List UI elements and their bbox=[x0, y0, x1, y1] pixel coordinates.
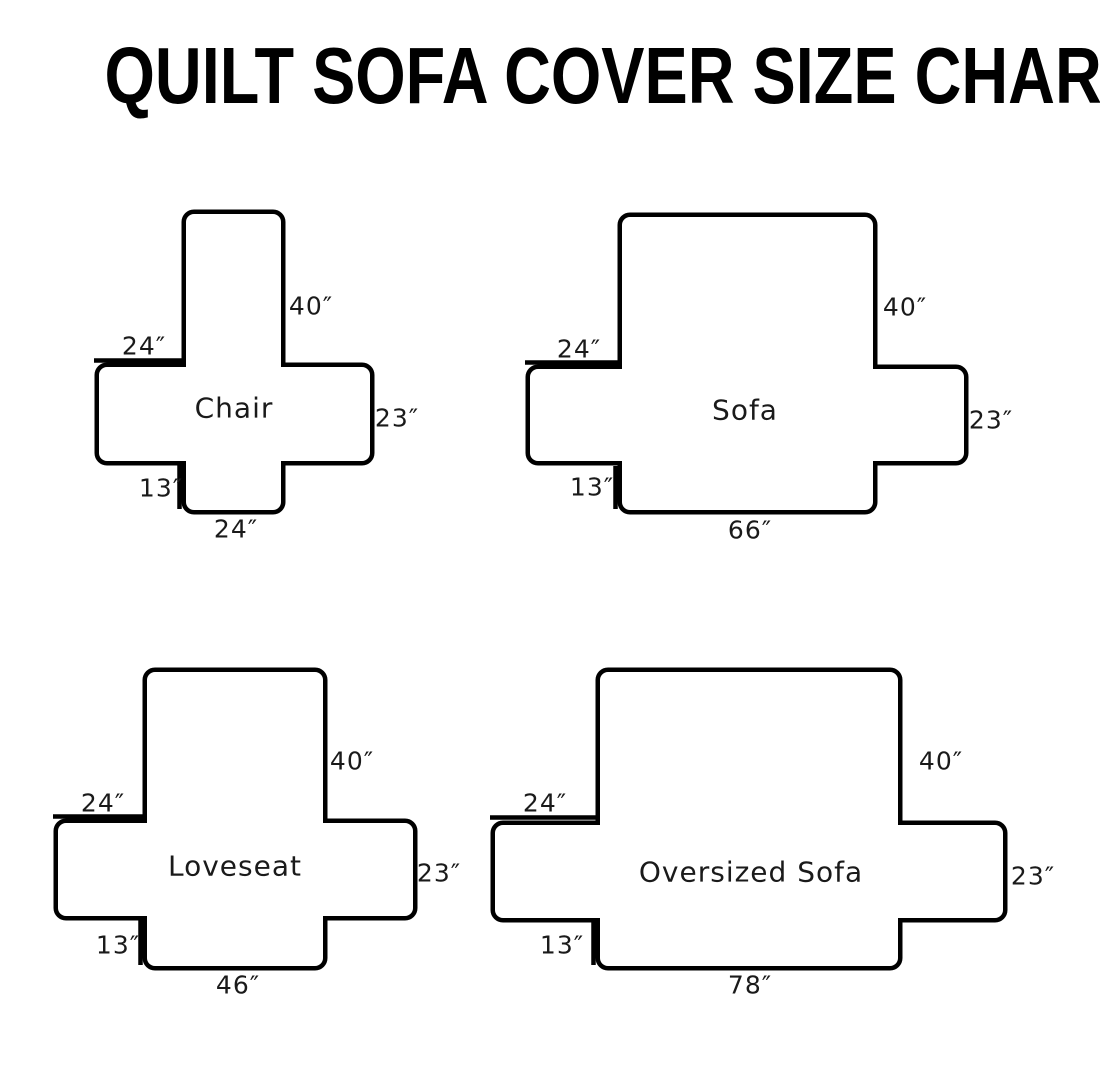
sofa-side-depth-label: 23″ bbox=[969, 406, 1013, 435]
sofa-name-label: Sofa bbox=[712, 394, 778, 427]
oversized-back-height-label: 40″ bbox=[919, 747, 963, 776]
oversized-arm-width-label: 24″ bbox=[523, 789, 567, 818]
oversized-side-depth-label: 23″ bbox=[1011, 862, 1055, 891]
loveseat-side-depth-label: 23″ bbox=[417, 859, 461, 888]
chair-cover-outline bbox=[94, 214, 370, 510]
chair-name-label: Chair bbox=[195, 392, 274, 425]
chair-arm-width-label: 24″ bbox=[122, 332, 166, 361]
oversized-bottom-width-label: 78″ bbox=[728, 971, 772, 1000]
sofa-bottom-width-label: 66″ bbox=[728, 516, 772, 545]
chair-back-skirt-fill bbox=[186, 214, 281, 510]
chair-bottom-width-label: 24″ bbox=[214, 515, 258, 544]
loveseat-bottom-width-label: 46″ bbox=[216, 971, 260, 1000]
chair-front-drop-label: 13″ bbox=[139, 474, 183, 503]
loveseat-back-skirt-fill bbox=[147, 672, 323, 966]
chair-side-depth-label: 23″ bbox=[375, 404, 419, 433]
loveseat-cover-outline bbox=[53, 672, 413, 966]
loveseat-front-drop-label: 13″ bbox=[96, 931, 140, 960]
oversized-front-drop-label: 13″ bbox=[540, 931, 584, 960]
chair-back-height-label: 40″ bbox=[289, 292, 333, 321]
sofa-front-drop-label: 13″ bbox=[570, 473, 614, 502]
loveseat-arm-width-label: 24″ bbox=[81, 789, 125, 818]
sofa-arm-width-label: 24″ bbox=[557, 335, 601, 364]
oversized-sofa-cover-outline bbox=[490, 672, 1003, 966]
oversized-back-skirt-fill bbox=[600, 672, 898, 966]
sofa-back-height-label: 40″ bbox=[883, 293, 927, 322]
sofa-back-skirt-fill bbox=[622, 217, 873, 510]
loveseat-name-label: Loveseat bbox=[168, 850, 302, 883]
size-chart-page: QUILT SOFA COVER SIZE CHART bbox=[0, 0, 1100, 1092]
cover-diagrams-canvas bbox=[0, 0, 1100, 1092]
oversized-name-label: Oversized Sofa bbox=[639, 856, 863, 889]
loveseat-back-height-label: 40″ bbox=[330, 747, 374, 776]
sofa-cover-outline bbox=[525, 217, 964, 510]
